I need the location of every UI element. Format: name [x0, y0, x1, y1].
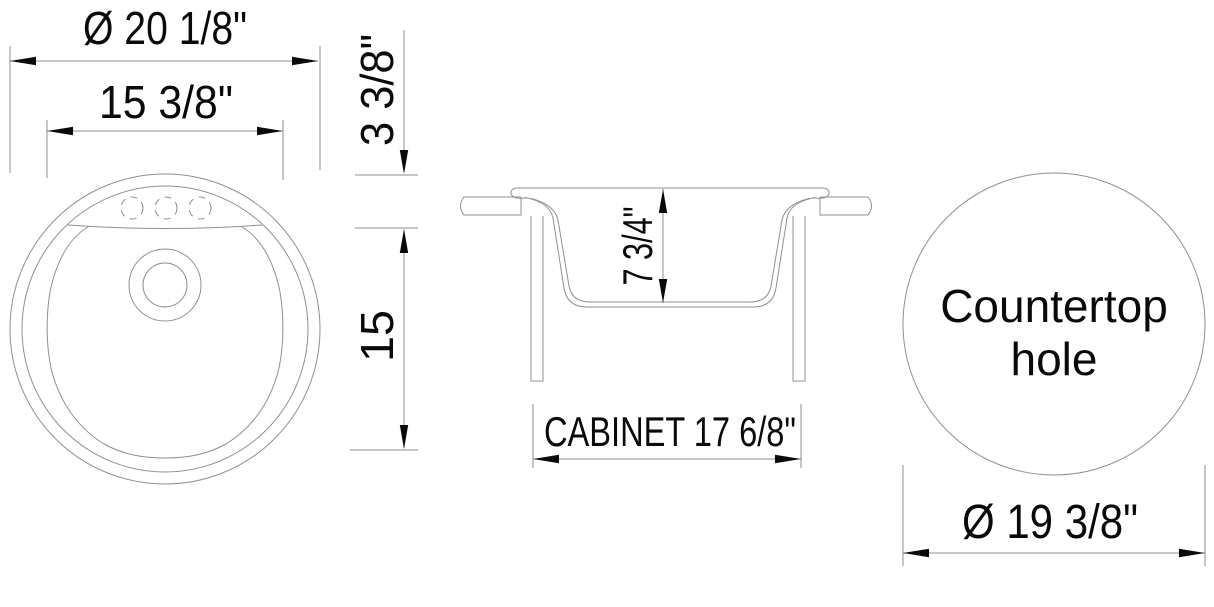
arrowhead: [292, 57, 318, 65]
bowl-depth-label: 7 3/4": [614, 207, 661, 286]
drain-outer-circle: [129, 249, 201, 321]
arrowhead: [400, 425, 408, 449]
drawing-canvas: Ø 20 1/8" 15 3/8" 3 3/8" 15 7 3/4" CABIN…: [0, 0, 1214, 607]
hole-diameter-label: Ø 19 3/8": [962, 496, 1138, 549]
countertop-hole-label-line1: Countertop: [940, 280, 1168, 332]
arrowhead: [1179, 549, 1205, 557]
arrowhead: [10, 57, 36, 65]
arrowhead: [400, 150, 408, 174]
arrowhead: [775, 455, 801, 463]
countertop-right: [820, 197, 872, 215]
arrowhead: [400, 229, 408, 253]
outer-diameter-label: Ø 20 1/8": [83, 2, 247, 54]
bowl-wall-inner: [531, 199, 809, 303]
sink-outer-rim-circle: [10, 174, 320, 484]
sink-bowl-outline: [47, 227, 283, 458]
bowl-wall-outer: [525, 198, 815, 308]
bowl-front-back-label: 15: [351, 310, 403, 362]
deck-depth-label: 3 3/8": [351, 34, 403, 146]
faucet-hole-left: [121, 197, 143, 219]
faucet-hole-right: [189, 197, 211, 219]
arrowhead: [903, 549, 929, 557]
sink-spec-drawing: Ø 20 1/8" 15 3/8" 3 3/8" 15 7 3/4" CABIN…: [0, 0, 1214, 607]
bowl-diameter-label: 15 3/8": [99, 76, 233, 128]
cabinet-leg-right: [793, 216, 805, 381]
arrowhead: [47, 127, 73, 135]
countertop-hole-label-line2: hole: [1011, 333, 1098, 385]
arrowhead: [257, 127, 283, 135]
countertop-left: [461, 197, 522, 215]
faucet-hole-center: [155, 197, 177, 219]
arrowhead: [533, 455, 559, 463]
cabinet-leg-left: [531, 216, 543, 381]
faucet-deck-edge: [68, 225, 262, 229]
drain-inner-circle: [143, 263, 187, 307]
cabinet-width-label: CABINET 17 6/8": [544, 408, 796, 455]
sink-top-view: [10, 174, 320, 484]
